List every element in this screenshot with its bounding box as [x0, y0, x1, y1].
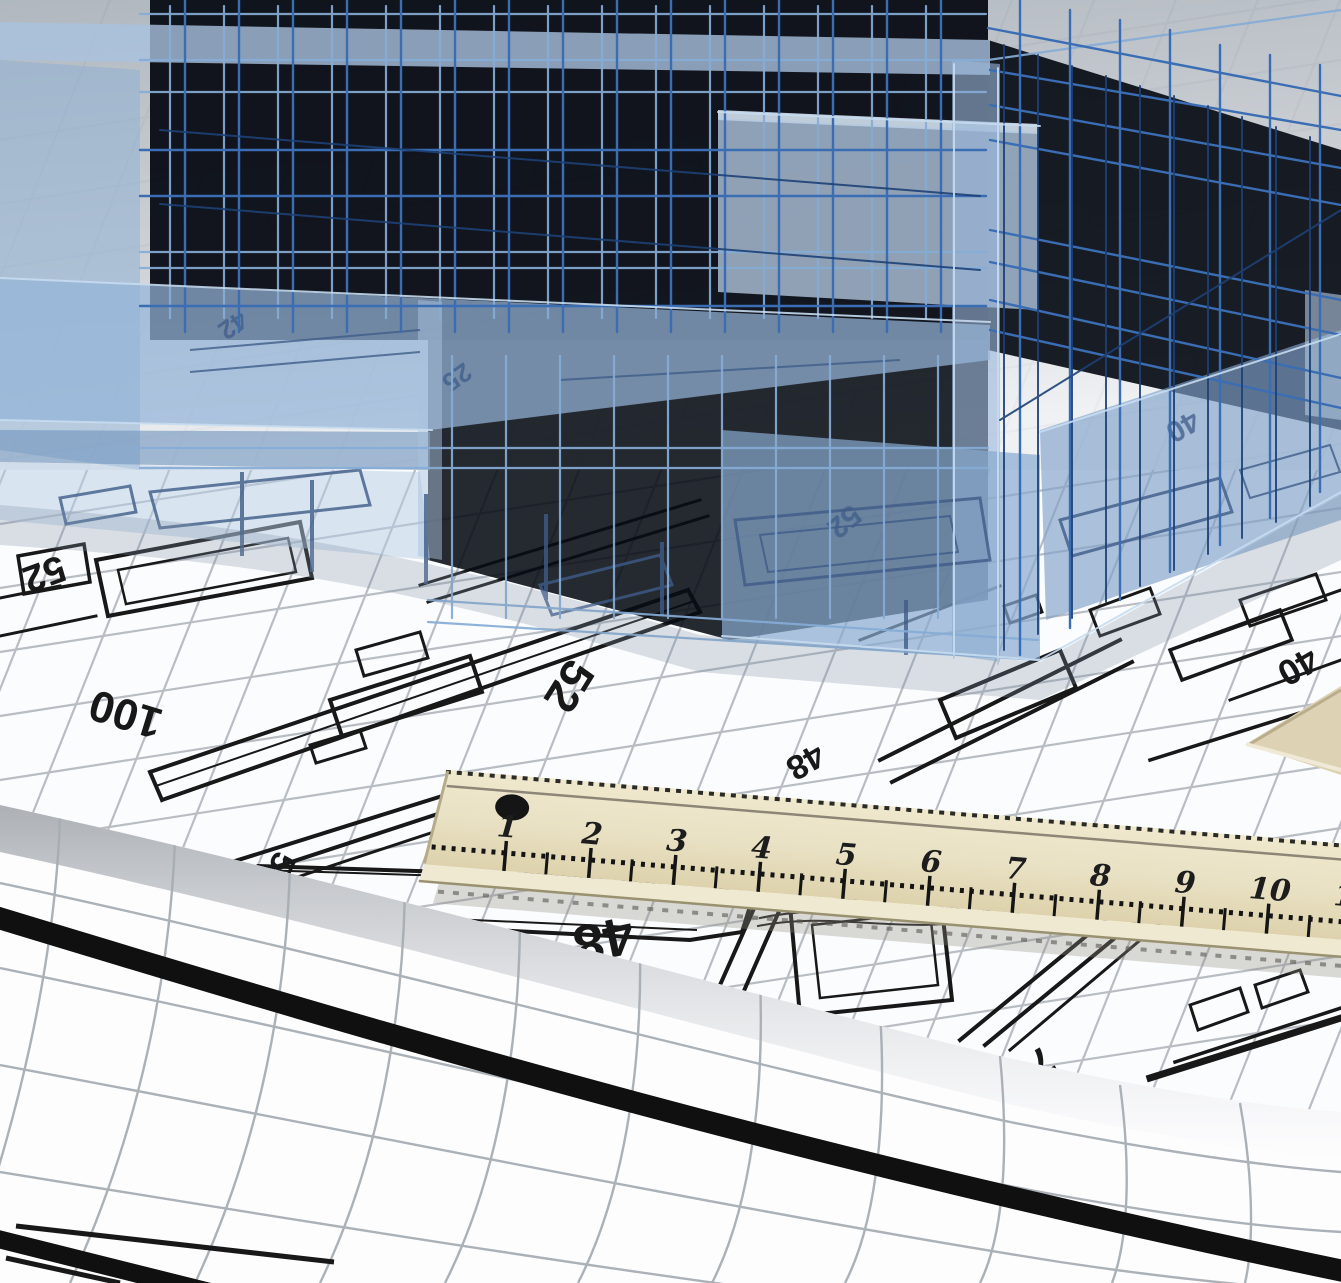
scene-canvas: 52 100 52 48 48 40 5 7: [0, 0, 1341, 1283]
ruler-number: 6: [919, 844, 943, 881]
ruler-number: 9: [1173, 865, 1197, 902]
ruler-number: 3: [665, 823, 689, 860]
ruler-number: 7: [1004, 851, 1028, 888]
blueprint-scene: 52 100 52 48 48 40 5 7: [0, 0, 1341, 1283]
ruler-number: 8: [1088, 858, 1113, 895]
ruler-number: 10: [1248, 871, 1293, 909]
glass-face: [722, 430, 1040, 660]
ruler-number: 5: [835, 837, 859, 874]
ruler-number: 1: [496, 809, 520, 846]
ruler-number: 4: [750, 830, 774, 867]
ruler-number: 2: [579, 816, 604, 853]
